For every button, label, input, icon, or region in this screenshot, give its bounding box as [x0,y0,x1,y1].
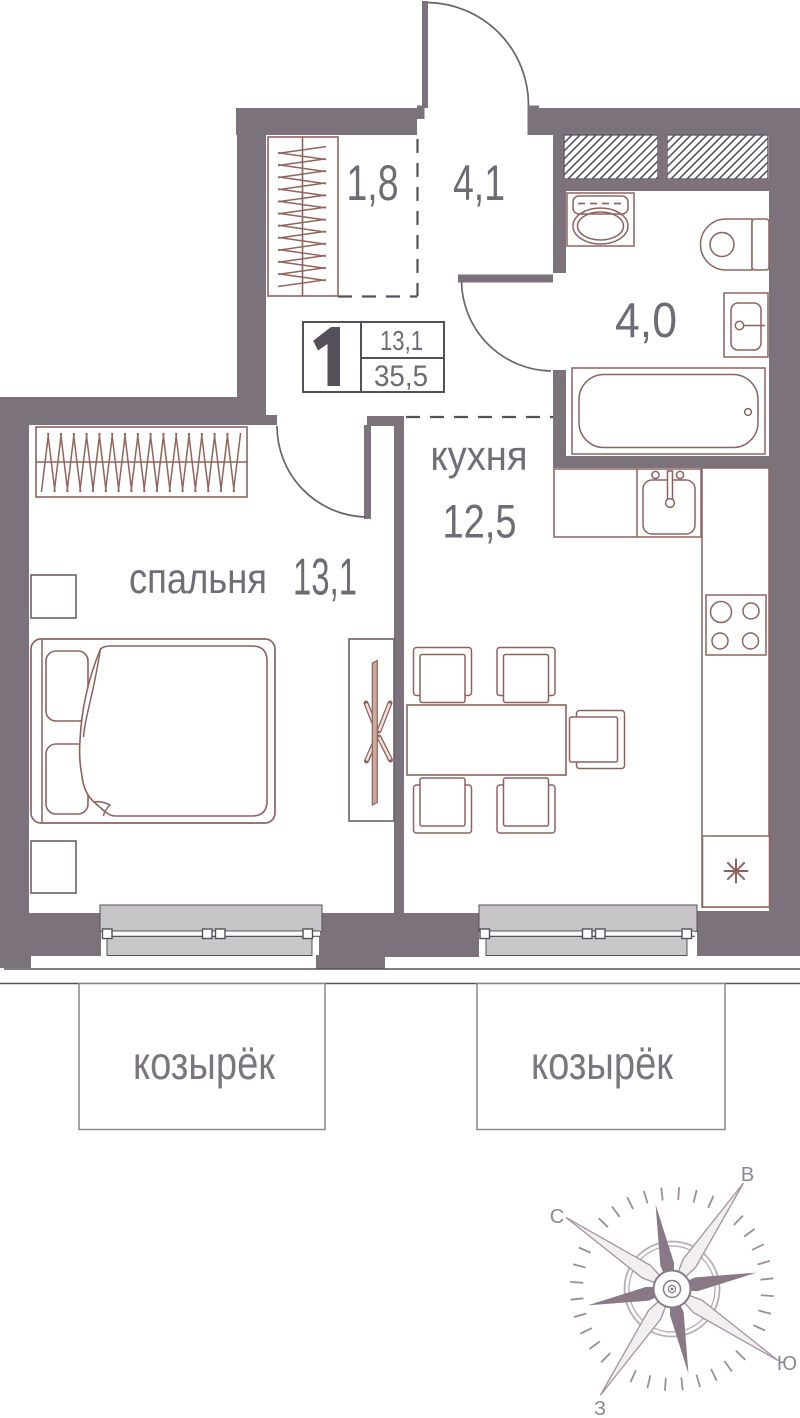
svg-text:С: С [550,1206,564,1228]
svg-text:козырёк: козырёк [133,1037,276,1089]
svg-text:кухня: кухня [431,432,528,479]
svg-text:козырёк: козырёк [531,1037,674,1089]
svg-text:В: В [741,1164,754,1186]
svg-text:4,0: 4,0 [615,294,677,348]
svg-text:спальня: спальня [129,555,267,603]
svg-text:13,1: 13,1 [380,325,423,356]
svg-text:35,5: 35,5 [374,360,428,393]
svg-text:12,5: 12,5 [443,495,517,548]
svg-text:1,8: 1,8 [347,155,399,211]
svg-text:13,1: 13,1 [293,549,357,607]
svg-text:Ю: Ю [777,1353,797,1375]
svg-text:4,1: 4,1 [453,155,505,211]
svg-text:З: З [594,1398,606,1418]
